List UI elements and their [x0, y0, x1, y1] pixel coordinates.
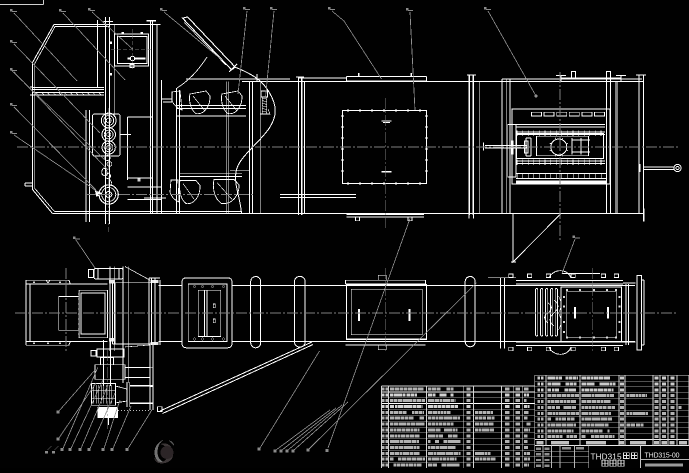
svg-text:THD315-00: THD315-00: [645, 453, 680, 460]
svg-text:THD315: THD315: [591, 452, 622, 461]
